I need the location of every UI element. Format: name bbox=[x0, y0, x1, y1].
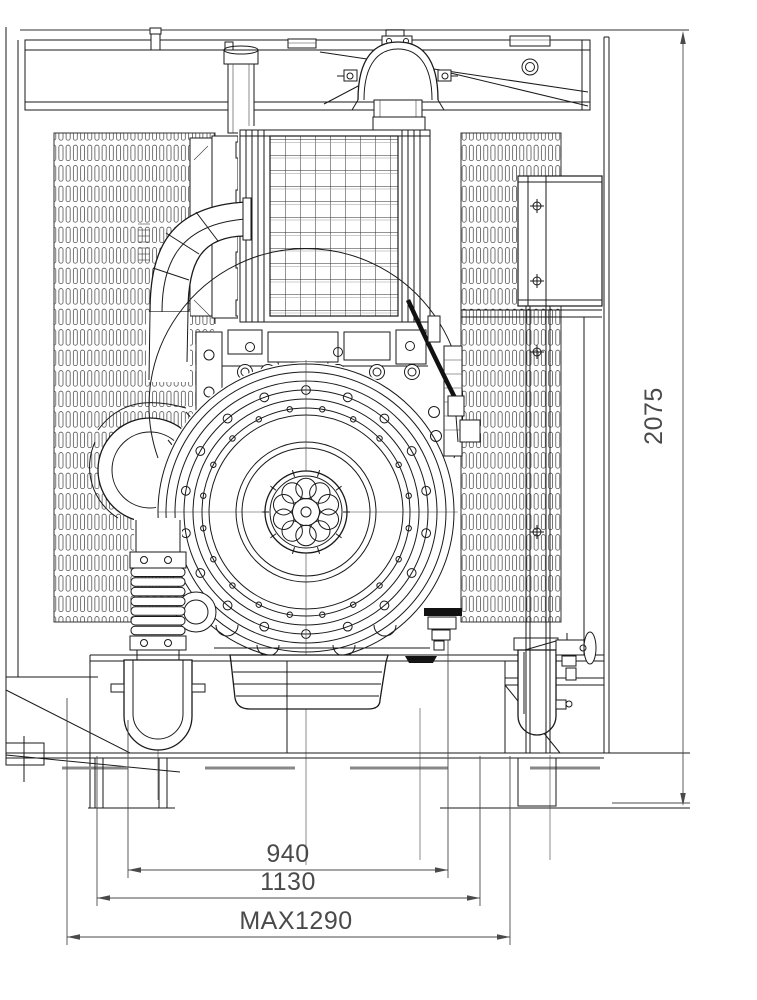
exhaust-downpipe-left bbox=[111, 660, 205, 750]
dimension-940-label: 940 bbox=[266, 840, 309, 868]
foot-left bbox=[95, 758, 167, 808]
oil-pan bbox=[214, 648, 430, 709]
engineering-drawing-page: 940 1130 MAX1290 2075 bbox=[0, 0, 757, 1000]
dimension-1130: 1130 bbox=[97, 868, 480, 901]
roof-vent-pipe bbox=[150, 28, 161, 50]
drain-valve bbox=[556, 632, 596, 680]
dimension-max1290: MAX1290 bbox=[67, 907, 510, 940]
dimension-max1290-label: MAX1290 bbox=[239, 907, 352, 935]
stack-clamp-left bbox=[337, 70, 357, 81]
dimension-2075: 2075 bbox=[640, 31, 686, 806]
exhaust-stack-straight bbox=[224, 42, 258, 133]
dimension-1130-label: 1130 bbox=[260, 868, 316, 896]
roof-hole bbox=[522, 59, 538, 75]
lifting-lug-right bbox=[510, 36, 550, 46]
lifting-lug-left bbox=[288, 39, 316, 48]
outrigger-left bbox=[6, 743, 44, 765]
exhaust-bellows bbox=[130, 518, 186, 660]
dimension-2075-label: 2075 bbox=[640, 387, 668, 445]
engine-front-view-drawing: 940 1130 MAX1290 2075 bbox=[0, 0, 757, 1000]
